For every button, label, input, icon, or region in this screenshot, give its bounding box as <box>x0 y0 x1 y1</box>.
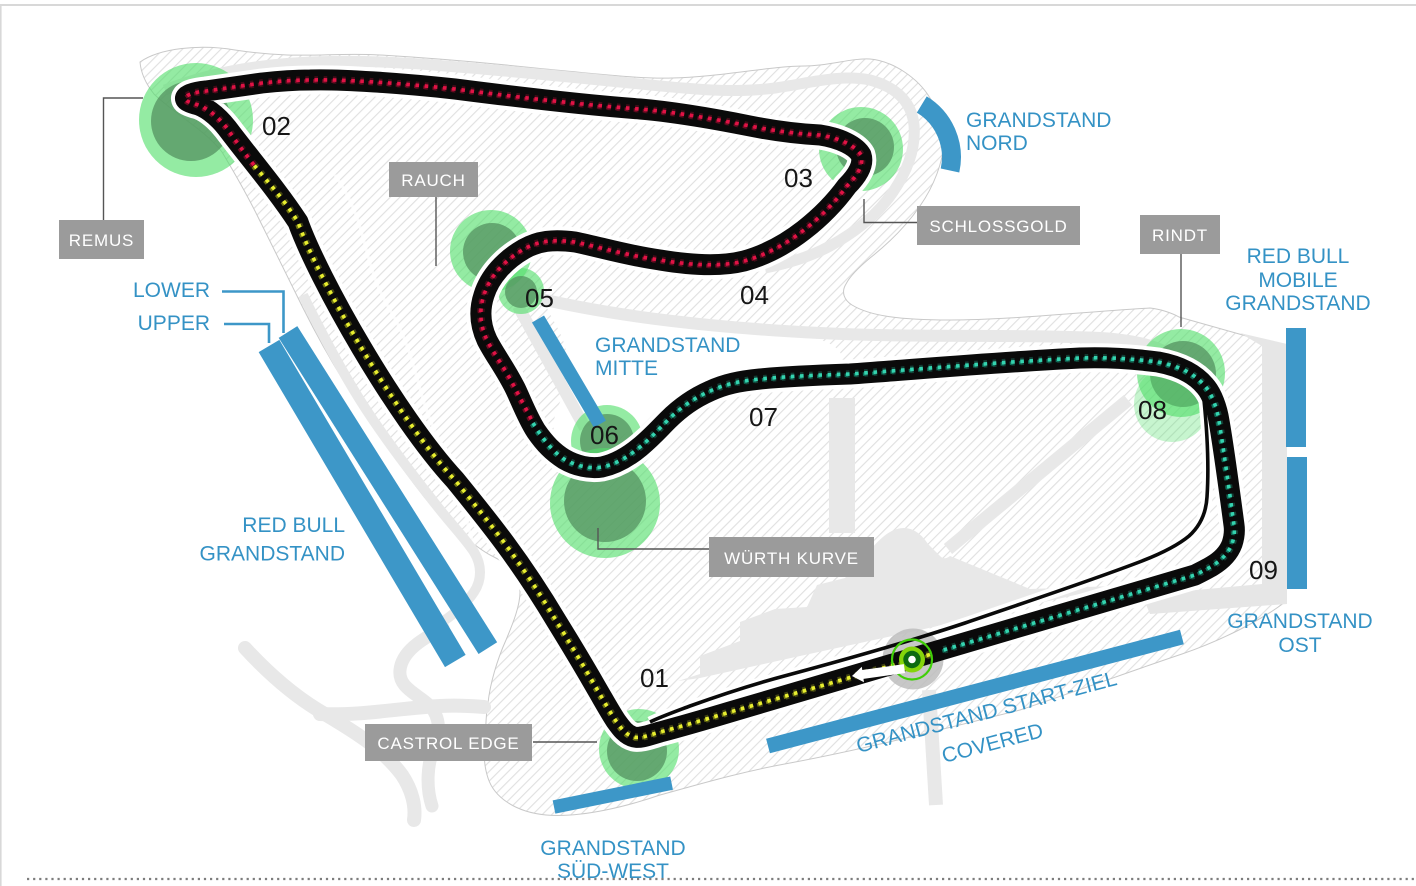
svg-text:06: 06 <box>590 420 619 450</box>
svg-text:RED BULL: RED BULL <box>242 514 345 537</box>
svg-text:04: 04 <box>740 280 769 310</box>
svg-text:UPPER: UPPER <box>138 312 210 335</box>
svg-text:GRANDSTAND: GRANDSTAND <box>966 109 1111 132</box>
svg-text:GRANDSTAND: GRANDSTAND <box>1227 610 1372 633</box>
svg-text:RED BULL: RED BULL <box>1247 245 1350 268</box>
svg-text:RAUCH: RAUCH <box>401 171 465 190</box>
svg-text:02: 02 <box>262 111 291 141</box>
svg-text:CASTROL EDGE: CASTROL EDGE <box>377 734 519 753</box>
svg-text:LOWER: LOWER <box>133 279 210 302</box>
svg-text:MOBILE: MOBILE <box>1258 269 1337 292</box>
svg-text:MITTE: MITTE <box>595 357 658 380</box>
svg-text:OST: OST <box>1278 634 1321 657</box>
svg-text:GRANDSTAND: GRANDSTAND <box>540 837 685 860</box>
svg-text:09: 09 <box>1249 555 1278 585</box>
svg-text:08: 08 <box>1138 395 1167 425</box>
svg-text:07: 07 <box>749 402 778 432</box>
svg-text:01: 01 <box>640 663 669 693</box>
svg-text:NORD: NORD <box>966 132 1028 155</box>
svg-text:SCHLOSSGOLD: SCHLOSSGOLD <box>929 217 1067 236</box>
svg-text:03: 03 <box>784 163 813 193</box>
svg-text:05: 05 <box>525 283 554 313</box>
svg-text:GRANDSTAND: GRANDSTAND <box>200 543 345 566</box>
svg-text:RINDT: RINDT <box>1152 226 1208 245</box>
svg-text:GRANDSTAND: GRANDSTAND <box>1225 292 1370 315</box>
svg-text:REMUS: REMUS <box>69 231 134 250</box>
svg-text:GRANDSTAND: GRANDSTAND <box>595 334 740 357</box>
svg-text:WÜRTH KURVE: WÜRTH KURVE <box>724 549 859 568</box>
